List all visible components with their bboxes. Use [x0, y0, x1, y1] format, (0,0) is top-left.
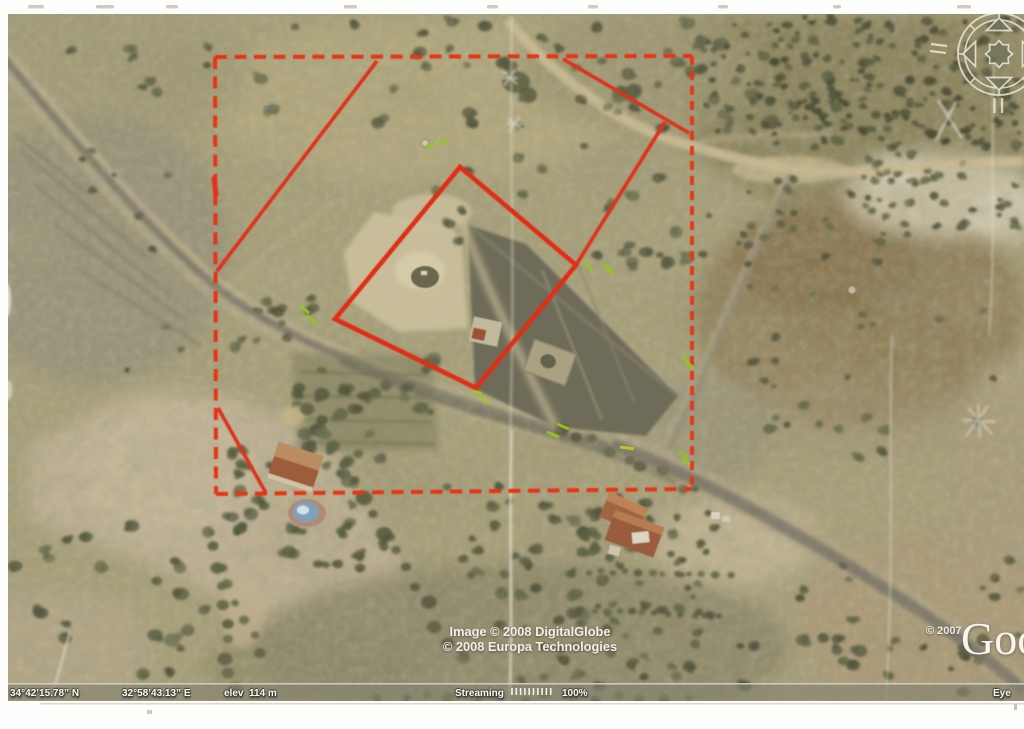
- svg-text:100%: 100%: [562, 688, 588, 699]
- svg-text:Streaming: Streaming: [455, 688, 504, 699]
- svg-text:32°58’43.13” E: 32°58’43.13” E: [122, 688, 191, 699]
- svg-text:34°42’15.78” N: 34°42’15.78” N: [10, 688, 79, 699]
- svg-text:© 2008 Europa Technologies: © 2008 Europa Technologies: [443, 639, 617, 654]
- svg-text:Image © 2008 DigitalGlobe: Image © 2008 DigitalGlobe: [450, 624, 611, 639]
- svg-text:Goo: Goo: [961, 613, 1024, 664]
- svg-text:elev 114 m: elev 114 m: [224, 688, 277, 699]
- svg-text:Eye: Eye: [993, 688, 1011, 699]
- svg-text:64: 64: [263, 104, 274, 115]
- svg-text:© 2007: © 2007: [926, 625, 962, 637]
